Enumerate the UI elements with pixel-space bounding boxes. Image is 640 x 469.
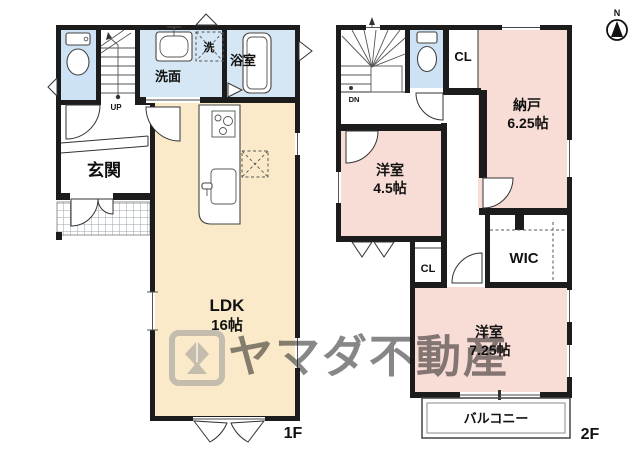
toilet-door-1f bbox=[66, 105, 100, 139]
bathroom-label: 浴室 bbox=[230, 53, 256, 68]
ldk-terrace-door-right bbox=[231, 421, 264, 442]
ldk-terrace-door-left bbox=[194, 421, 227, 442]
stairs-down-label: DN bbox=[349, 95, 360, 104]
storage-label: 納戸 bbox=[513, 97, 541, 113]
north-arrow: N bbox=[607, 8, 627, 40]
bedroom-small-label: 洋室 bbox=[376, 162, 404, 178]
washer-label: 洗 bbox=[204, 40, 215, 54]
brand-watermark-text: ヤマダ不動産 bbox=[228, 331, 510, 382]
washroom-label: 洗面 bbox=[155, 69, 181, 84]
floor1-label: 1F bbox=[284, 425, 303, 442]
bedroom-small-window-left-icon bbox=[352, 242, 372, 257]
balcony-label: バルコニー bbox=[464, 411, 529, 426]
closet-upper-label: CL bbox=[454, 49, 471, 64]
kitchen-counter bbox=[199, 105, 240, 224]
toilet-door-2f bbox=[416, 93, 443, 120]
bedroom-small-area-label: 4.5帖 bbox=[373, 180, 406, 196]
north-label: N bbox=[614, 8, 621, 18]
staircase-1f bbox=[101, 30, 135, 99]
floorplan-canvas: 玄関 洗面 浴室 洗 LDK 16帖 UP 1F bbox=[0, 0, 640, 469]
washroom-sink bbox=[156, 27, 192, 61]
floorplan-svg: 玄関 洗面 浴室 洗 LDK 16帖 UP 1F bbox=[0, 0, 640, 469]
stairs-up-label: UP bbox=[110, 103, 122, 112]
entrance-label: 玄関 bbox=[87, 160, 121, 180]
floor2-label: 2F bbox=[581, 426, 600, 443]
ldk-label: LDK bbox=[210, 296, 246, 315]
storage-area-label: 6.25帖 bbox=[507, 115, 548, 131]
closet-mid-label: CL bbox=[421, 263, 436, 275]
toilet-window-icon bbox=[48, 78, 57, 96]
toilet-fixture-1f bbox=[66, 33, 90, 75]
toilet-fixture-2f bbox=[417, 32, 437, 72]
wic-label: WIC bbox=[509, 250, 538, 267]
bedroom-large-door bbox=[452, 253, 482, 283]
bathroom-window-icon bbox=[299, 41, 312, 61]
brand-watermark: ヤマダ不動産 bbox=[172, 331, 510, 383]
washroom-window-icon bbox=[196, 14, 217, 25]
bedroom-small-window-right-icon bbox=[374, 242, 394, 257]
